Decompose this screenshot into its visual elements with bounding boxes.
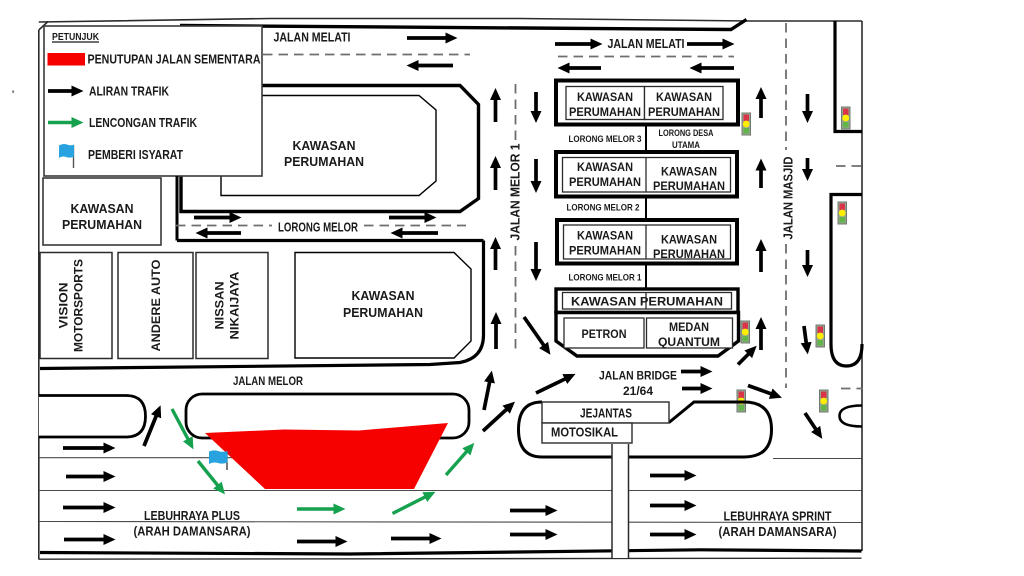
svg-text:QUANTUM: QUANTUM xyxy=(658,337,720,349)
svg-text:PETRON: PETRON xyxy=(582,329,627,341)
svg-text:PERUMAHAN: PERUMAHAN xyxy=(569,107,641,119)
svg-text:KAWASAN: KAWASAN xyxy=(352,289,415,303)
svg-text:LORONG MELOR 3: LORONG MELOR 3 xyxy=(569,134,642,144)
svg-text:JALAN MELATI: JALAN MELATI xyxy=(274,30,351,45)
svg-text:KAWASAN: KAWASAN xyxy=(656,92,712,104)
svg-text:(ARAH DAMANSARA): (ARAH DAMANSARA) xyxy=(134,524,251,539)
svg-text:LORONG DESA: LORONG DESA xyxy=(659,128,714,138)
svg-text:PETUNJUK: PETUNJUK xyxy=(52,31,99,43)
svg-text:PERUMAHAN: PERUMAHAN xyxy=(569,177,641,189)
svg-text:LEBUHRAYA PLUS: LEBUHRAYA PLUS xyxy=(144,508,240,523)
svg-text:ANDERE AUTO: ANDERE AUTO xyxy=(149,260,163,352)
svg-text:PERUMAHAN: PERUMAHAN xyxy=(653,249,725,261)
svg-text:': ' xyxy=(12,89,14,99)
svg-text:JEJANTAS: JEJANTAS xyxy=(580,406,632,421)
svg-text:JALAN MELOR 1: JALAN MELOR 1 xyxy=(508,144,523,241)
svg-text:LORONG MELOR 1: LORONG MELOR 1 xyxy=(569,273,642,283)
svg-text:PERUMAHAN: PERUMAHAN xyxy=(648,107,720,119)
svg-text:VISION: VISION xyxy=(57,283,71,329)
svg-text:JALAN MASJID: JALAN MASJID xyxy=(781,157,796,240)
svg-text:JALAN BRIDGE: JALAN BRIDGE xyxy=(599,369,677,383)
svg-text:PERUMAHAN: PERUMAHAN xyxy=(569,246,641,258)
svg-text:KAWASAN: KAWASAN xyxy=(577,231,633,243)
svg-text:MOTOSIKAL: MOTOSIKAL xyxy=(551,425,618,440)
svg-text:PERUMAHAN: PERUMAHAN xyxy=(653,181,725,193)
svg-text:MOTORSPORTS: MOTORSPORTS xyxy=(72,259,86,352)
svg-text:NIKAIJAYA: NIKAIJAYA xyxy=(228,271,242,339)
svg-text:PENUTUPAN JALAN SEMENTARA: PENUTUPAN JALAN SEMENTARA xyxy=(88,52,261,67)
svg-text:PEMBERI ISYARAT: PEMBERI ISYARAT xyxy=(88,147,183,162)
svg-text:UTAMA: UTAMA xyxy=(672,140,700,150)
svg-text:PERUMAHAN: PERUMAHAN xyxy=(62,218,142,232)
svg-text:LEBUHRAYA SPRINT: LEBUHRAYA SPRINT xyxy=(724,509,832,524)
svg-text:LORONG MELOR: LORONG MELOR xyxy=(278,221,358,235)
svg-text:KAWASAN: KAWASAN xyxy=(293,139,356,153)
svg-text:(ARAH DAMANSARA): (ARAH DAMANSARA) xyxy=(719,524,837,539)
svg-text:MEDAN: MEDAN xyxy=(669,322,709,334)
svg-text:21/64: 21/64 xyxy=(623,384,653,398)
svg-text:KAWASAN: KAWASAN xyxy=(577,92,633,104)
svg-text:JALAN MELOR: JALAN MELOR xyxy=(233,374,303,388)
svg-text:KAWASAN: KAWASAN xyxy=(577,162,633,174)
svg-text:LORONG MELOR 2: LORONG MELOR 2 xyxy=(567,203,640,213)
svg-text:KAWASAN: KAWASAN xyxy=(71,202,134,216)
svg-text:KAWASAN: KAWASAN xyxy=(661,167,717,179)
svg-text:LENCONGAN TRAFIK: LENCONGAN TRAFIK xyxy=(89,115,197,130)
svg-text:KAWASAN PERUMAHAN: KAWASAN PERUMAHAN xyxy=(571,297,723,309)
svg-text:ALIRAN TRAFIK: ALIRAN TRAFIK xyxy=(89,84,169,99)
svg-text:KAWASAN: KAWASAN xyxy=(661,235,717,247)
svg-text:PERUMAHAN: PERUMAHAN xyxy=(343,306,423,320)
svg-text:JALAN MELATI: JALAN MELATI xyxy=(608,36,685,51)
svg-text:PERUMAHAN: PERUMAHAN xyxy=(284,155,364,169)
svg-text:NISSAN: NISSAN xyxy=(213,282,227,330)
